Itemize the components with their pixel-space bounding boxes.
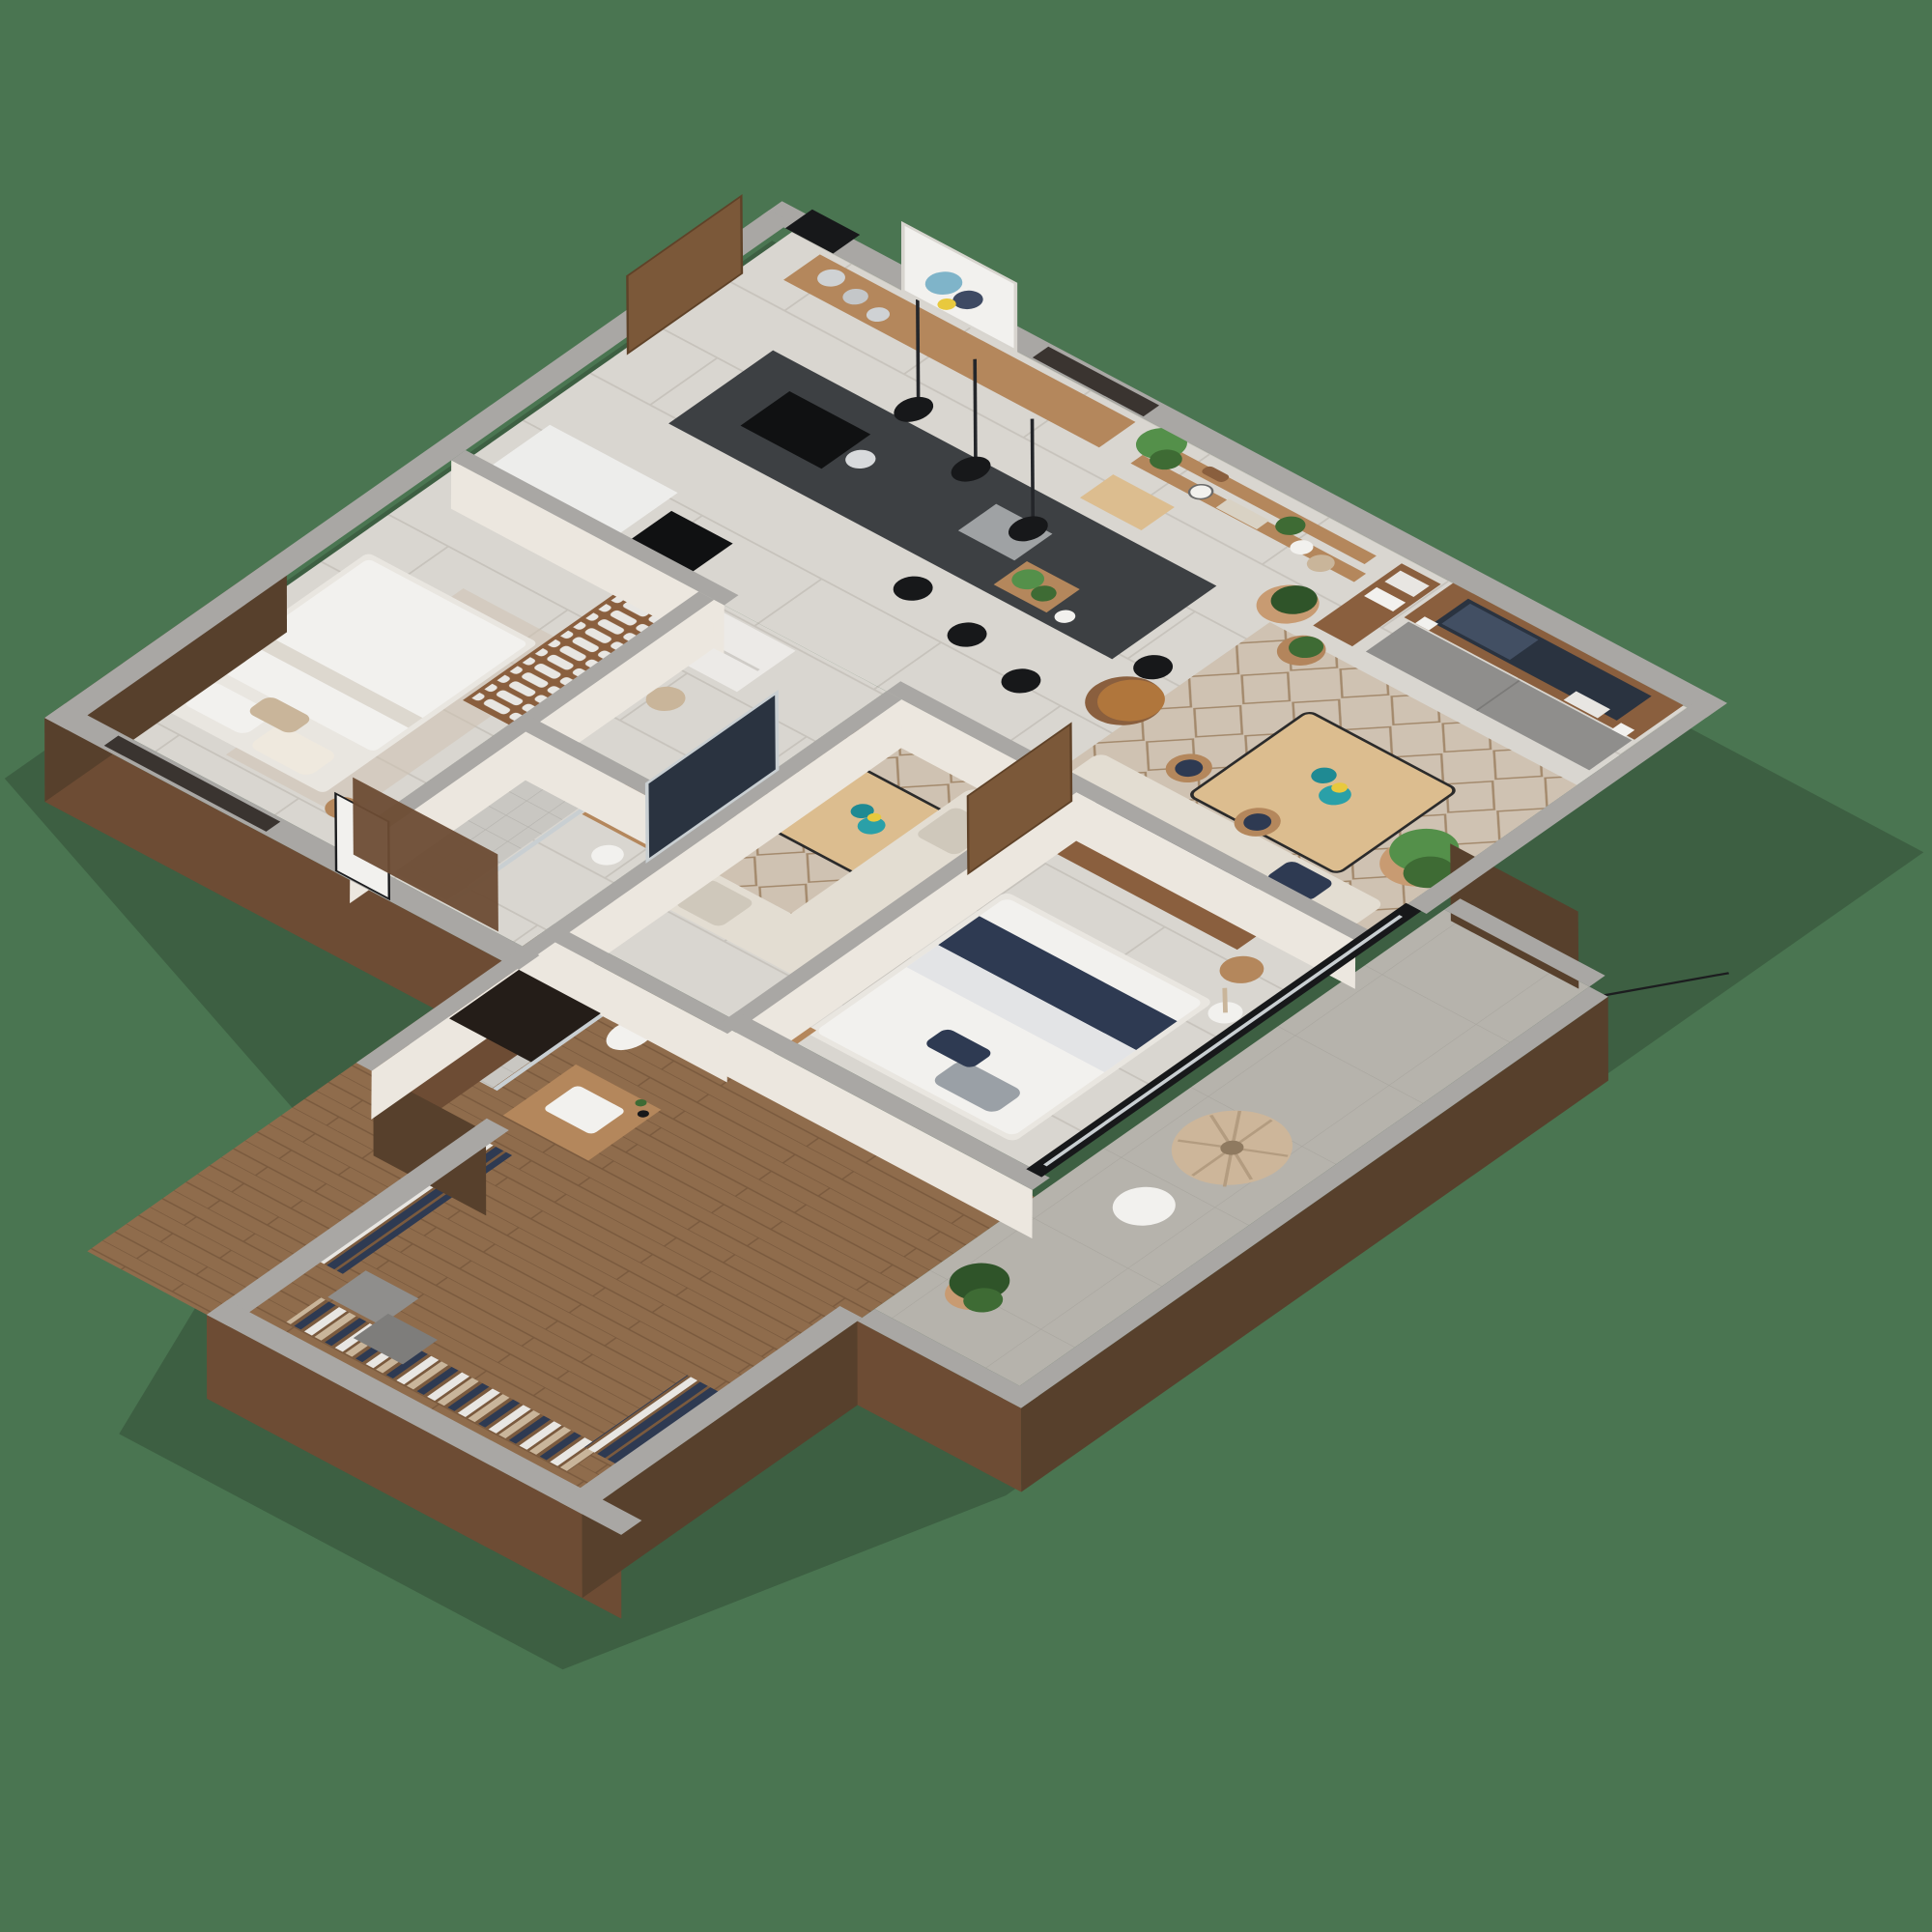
floor-plan-render: [0, 0, 1932, 1932]
